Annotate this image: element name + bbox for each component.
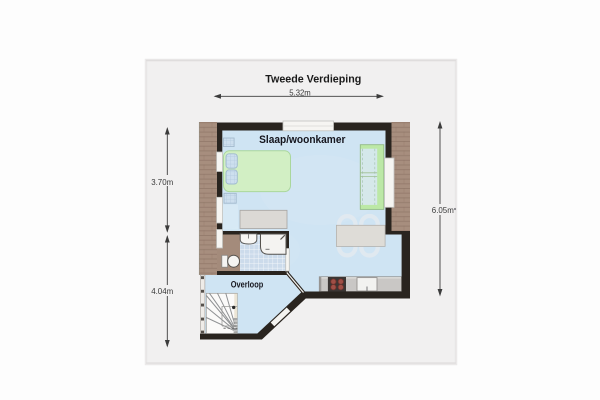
svg-text:6.05m: 6.05m xyxy=(432,205,454,215)
svg-text:4.04m: 4.04m xyxy=(151,286,173,296)
svg-text:3.70m: 3.70m xyxy=(151,177,173,187)
svg-text:Tweede Verdieping: Tweede Verdieping xyxy=(265,74,361,86)
svg-text:Overloop: Overloop xyxy=(231,279,264,289)
svg-text:5.32m: 5.32m xyxy=(289,88,311,98)
svg-text:Slaap/woonkamer: Slaap/woonkamer xyxy=(259,134,346,146)
